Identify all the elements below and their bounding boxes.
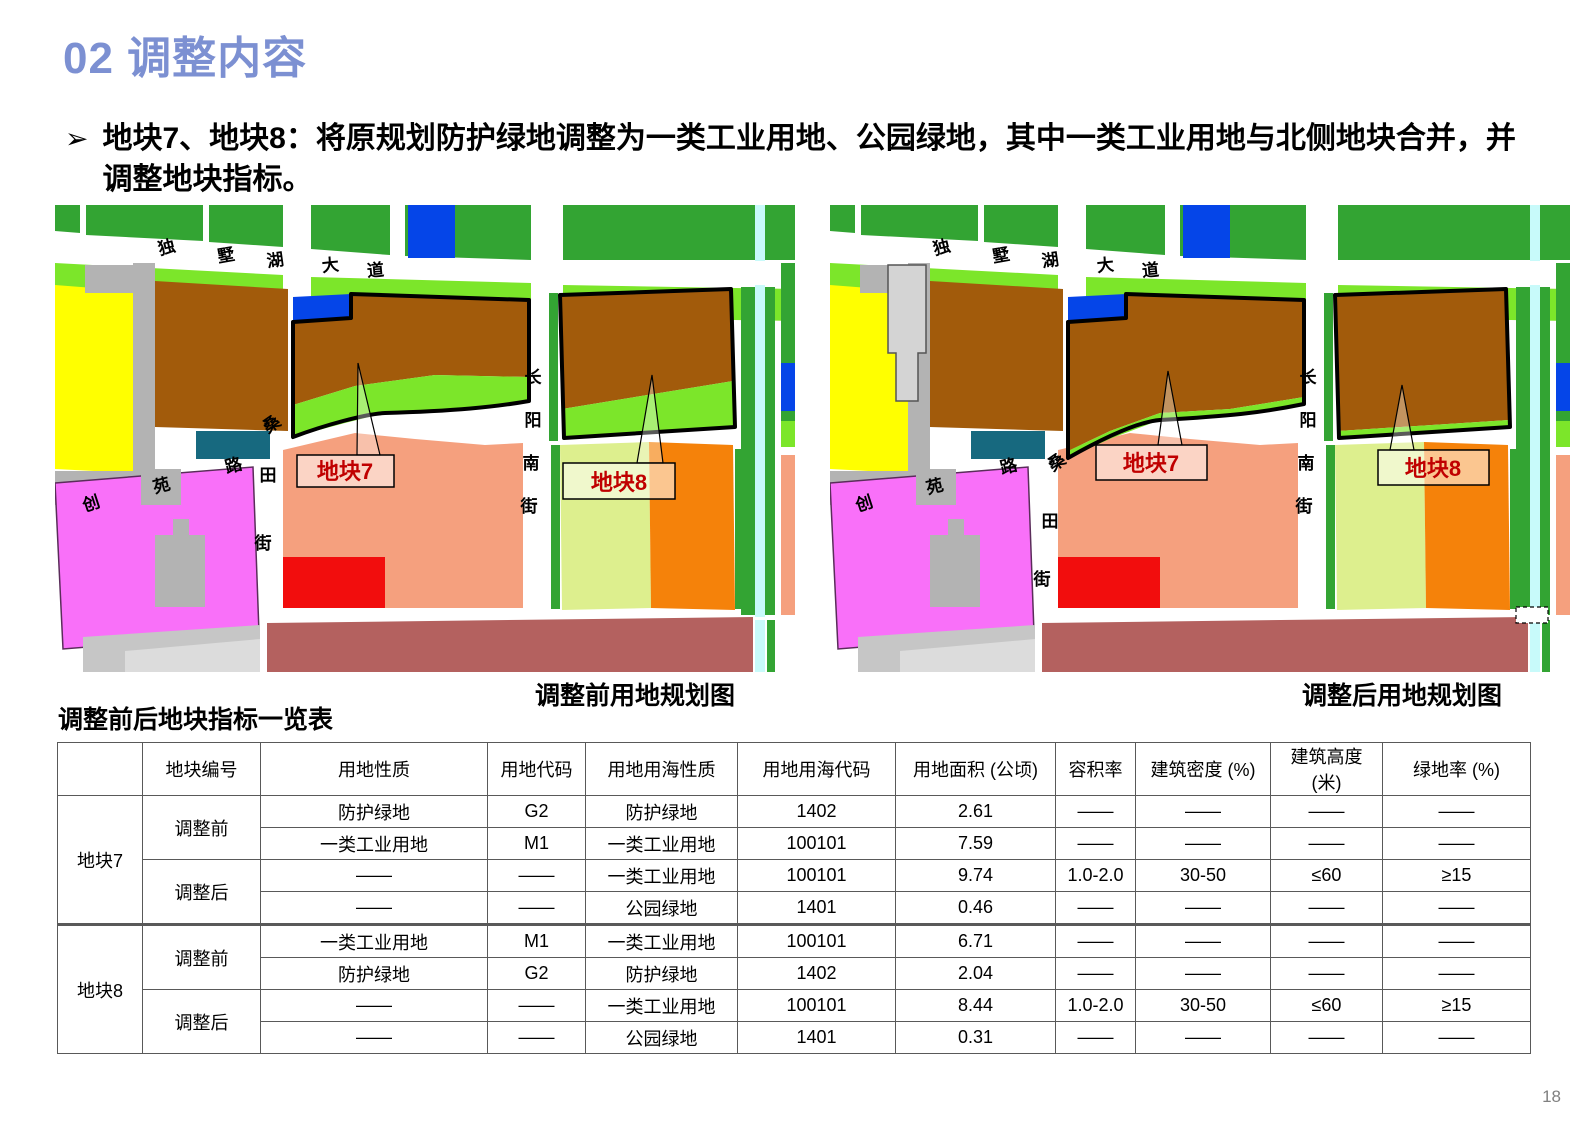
svg-text:街: 街	[1033, 569, 1051, 589]
cell: ——	[1136, 892, 1271, 925]
cell: ——	[488, 860, 586, 892]
table-header-row: 地块编号 用地性质 用地代码 用地用海性质 用地用海代码 用地面积 (公顷) 容…	[58, 743, 1531, 796]
changyang-road-label: 长	[525, 367, 543, 387]
cell: ——	[1056, 892, 1136, 925]
table-row: 地块8 调整前 一类工业用地 M1 一类工业用地 100101 6.71 —— …	[58, 925, 1531, 958]
page-number: 18	[1542, 1087, 1561, 1107]
phase-label: 调整后	[143, 860, 261, 925]
cell: 7.59	[896, 828, 1056, 860]
cell: ——	[261, 990, 488, 1022]
maroon-band	[267, 617, 753, 672]
table-row: —— —— 公园绿地 1401 0.31 —— —— —— ——	[58, 1022, 1531, 1054]
cell: ——	[1136, 796, 1271, 828]
cell: G2	[488, 796, 586, 828]
plot8-parcel	[1324, 289, 1510, 441]
map-after-caption: 调整后用地规划图	[1192, 676, 1587, 712]
cell: ——	[1271, 1022, 1383, 1054]
svg-text:大: 大	[321, 254, 340, 276]
cell: 防护绿地	[261, 796, 488, 828]
far-east-column	[781, 263, 795, 615]
teal-parcel	[196, 431, 270, 459]
col-header: 建筑密度 (%)	[1136, 743, 1271, 796]
cell: 一类工业用地	[261, 925, 488, 958]
table-row: 一类工业用地 M1 一类工业用地 100101 7.59 —— —— —— ——	[58, 828, 1531, 860]
table-row: 调整后 —— —— 一类工业用地 100101 8.44 1.0-2.0 30-…	[58, 990, 1531, 1022]
cell: ——	[1383, 892, 1531, 925]
cell: 1.0-2.0	[1056, 860, 1136, 892]
plot-label: 地块7	[58, 796, 143, 925]
cell: ——	[1383, 958, 1531, 990]
plot7-callout-label: 地块7	[317, 459, 373, 484]
plot8-callout-label: 地块8	[591, 470, 647, 495]
cell: 2.61	[896, 796, 1056, 828]
svg-text:街: 街	[1295, 496, 1313, 516]
map-before-caption: 调整前用地规划图	[425, 676, 845, 712]
col-header: 用地性质	[261, 743, 488, 796]
phase-label: 调整前	[143, 925, 261, 990]
cell: 一类工业用地	[586, 925, 738, 958]
table-row: 调整后 —— —— 一类工业用地 100101 9.74 1.0-2.0 30-…	[58, 860, 1531, 892]
plot-label: 地块8	[58, 925, 143, 1054]
cell: ——	[1271, 828, 1383, 860]
phase-label: 调整后	[143, 990, 261, 1054]
cell: 防护绿地	[261, 958, 488, 990]
cell: ——	[1056, 828, 1136, 860]
cell: ——	[1271, 892, 1383, 925]
cell: 100101	[738, 990, 896, 1022]
cell: ——	[1271, 958, 1383, 990]
cell: ——	[1056, 925, 1136, 958]
col-header: 地块编号	[143, 743, 261, 796]
cell: 防护绿地	[586, 796, 738, 828]
table-row: 地块7 调整前 防护绿地 G2 防护绿地 1402 2.61 —— —— —— …	[58, 796, 1531, 828]
svg-text:墅: 墅	[216, 245, 236, 267]
cell: ≤60	[1271, 860, 1383, 892]
cell: 0.46	[896, 892, 1056, 925]
svg-text:阳: 阳	[525, 411, 542, 430]
plot-index-table: 地块编号 用地性质 用地代码 用地用海性质 用地用海代码 用地面积 (公顷) 容…	[57, 742, 1531, 1054]
cell: ——	[488, 892, 586, 925]
cell: 1.0-2.0	[1056, 990, 1136, 1022]
col-header	[58, 743, 143, 796]
maroon-band	[1042, 617, 1528, 672]
cell: 0.31	[896, 1022, 1056, 1054]
cell: 6.71	[896, 925, 1056, 958]
svg-text:街: 街	[520, 496, 538, 516]
cell: ——	[261, 1022, 488, 1054]
svg-text:阳: 阳	[1300, 411, 1317, 430]
canal-column	[741, 205, 775, 672]
slide: 02 调整内容 ➢ 地块7、地块8：将原规划防护绿地调整为一类工业用地、公园绿地…	[0, 0, 1587, 1123]
svg-text:道: 道	[1141, 259, 1160, 280]
col-header: 用地用海代码	[738, 743, 896, 796]
svg-text:湖: 湖	[265, 250, 284, 271]
table-row: —— —— 公园绿地 1401 0.46 —— —— —— ——	[58, 892, 1531, 925]
cell: 100101	[738, 860, 896, 892]
svg-text:南: 南	[523, 453, 540, 473]
cell: ——	[1136, 958, 1271, 990]
phase-label: 调整前	[143, 796, 261, 860]
col-header: 绿地率 (%)	[1383, 743, 1531, 796]
plot7-parcel	[293, 294, 529, 437]
cell: 8.44	[896, 990, 1056, 1022]
svg-text:道: 道	[366, 259, 385, 280]
svg-text:湖: 湖	[1040, 250, 1059, 271]
col-header: 容积率	[1056, 743, 1136, 796]
cell: M1	[488, 925, 586, 958]
cell: ——	[1056, 796, 1136, 828]
cell: 1401	[738, 892, 896, 925]
svg-text:墅: 墅	[991, 245, 1011, 267]
cell: 一类工业用地	[586, 990, 738, 1022]
map-before-adjustment: 独 墅 湖 大 道 桑 田 街 创 苑 路 长 阳 南 街 地块7	[55, 205, 795, 672]
water-parcel	[1183, 205, 1230, 258]
plot7-parcel	[1068, 294, 1304, 458]
cell: ——	[261, 892, 488, 925]
plot8-parcel	[549, 289, 735, 441]
northwest-industrial-parcel	[930, 281, 1063, 431]
teal-parcel	[971, 431, 1045, 459]
page-title: 02 调整内容	[63, 22, 307, 86]
cell: 30-50	[1136, 860, 1271, 892]
cell: ——	[488, 990, 586, 1022]
svg-text:大: 大	[1096, 254, 1115, 276]
map-after-adjustment: 独 墅 湖 大 道 桑 田 街 创 苑 路 长 阳 南 街 地块7	[830, 205, 1570, 672]
cell: 30-50	[1136, 990, 1271, 1022]
northwest-industrial-parcel	[155, 281, 288, 431]
cell: 100101	[738, 925, 896, 958]
cell: 一类工业用地	[261, 828, 488, 860]
cell: M1	[488, 828, 586, 860]
svg-text:田: 田	[260, 466, 277, 485]
cell: 1402	[738, 796, 896, 828]
cell: ——	[1271, 796, 1383, 828]
arrow-bullet-icon: ➢	[65, 118, 88, 160]
cell: 100101	[738, 828, 896, 860]
dashed-annotation-box	[1516, 607, 1548, 623]
cell: ——	[1271, 925, 1383, 958]
cell: 一类工业用地	[586, 828, 738, 860]
far-east-column	[1556, 263, 1570, 615]
cell: 防护绿地	[586, 958, 738, 990]
red-parcel	[283, 557, 385, 608]
cell: 公园绿地	[586, 892, 738, 925]
cell: 1401	[738, 1022, 896, 1054]
cell: ≤60	[1271, 990, 1383, 1022]
cell: 9.74	[896, 860, 1056, 892]
cell: 公园绿地	[586, 1022, 738, 1054]
cell: ≥15	[1383, 860, 1531, 892]
svg-text:南: 南	[1298, 453, 1315, 473]
canal-column	[1516, 205, 1550, 672]
col-header: 用地代码	[488, 743, 586, 796]
cell: ≥15	[1383, 990, 1531, 1022]
table-row: 防护绿地 G2 防护绿地 1402 2.04 —— —— —— ——	[58, 958, 1531, 990]
cell: ——	[1136, 828, 1271, 860]
cell: ——	[1136, 925, 1271, 958]
cell: ——	[1383, 925, 1531, 958]
intro-paragraph: ➢ 地块7、地块8：将原规划防护绿地调整为一类工业用地、公园绿地，其中一类工业用…	[65, 118, 1525, 200]
cell: 一类工业用地	[586, 860, 738, 892]
intro-text: 地块7、地块8：将原规划防护绿地调整为一类工业用地、公园绿地，其中一类工业用地与…	[102, 118, 1525, 200]
col-header: 建筑高度 (米)	[1271, 743, 1383, 796]
red-parcel	[1058, 557, 1160, 608]
cell: ——	[1056, 1022, 1136, 1054]
yellow-parcel	[55, 285, 133, 473]
cell: ——	[488, 1022, 586, 1054]
svg-text:田: 田	[1042, 512, 1059, 531]
svg-text:街: 街	[254, 533, 272, 553]
cell: ——	[1383, 1022, 1531, 1054]
changyang-road-label: 长	[1300, 367, 1318, 387]
cell: 1402	[738, 958, 896, 990]
cell: ——	[261, 860, 488, 892]
col-header: 用地面积 (公顷)	[896, 743, 1056, 796]
plot8-callout-label: 地块8	[1405, 456, 1461, 481]
cell: G2	[488, 958, 586, 990]
plot7-callout-label: 地块7	[1123, 451, 1179, 476]
water-parcel	[408, 205, 455, 258]
cell: ——	[1383, 828, 1531, 860]
col-header: 用地用海性质	[586, 743, 738, 796]
map-before-canvas: 独 墅 湖 大 道 桑 田 街 创 苑 路 长 阳 南 街 地块7	[55, 205, 795, 672]
cell: ——	[1056, 958, 1136, 990]
cell: ——	[1383, 796, 1531, 828]
map-after-canvas: 独 墅 湖 大 道 桑 田 街 创 苑 路 长 阳 南 街 地块7	[830, 205, 1570, 672]
table-title: 调整前后地块指标一览表	[58, 700, 333, 736]
cell: 2.04	[896, 958, 1056, 990]
cell: ——	[1136, 1022, 1271, 1054]
